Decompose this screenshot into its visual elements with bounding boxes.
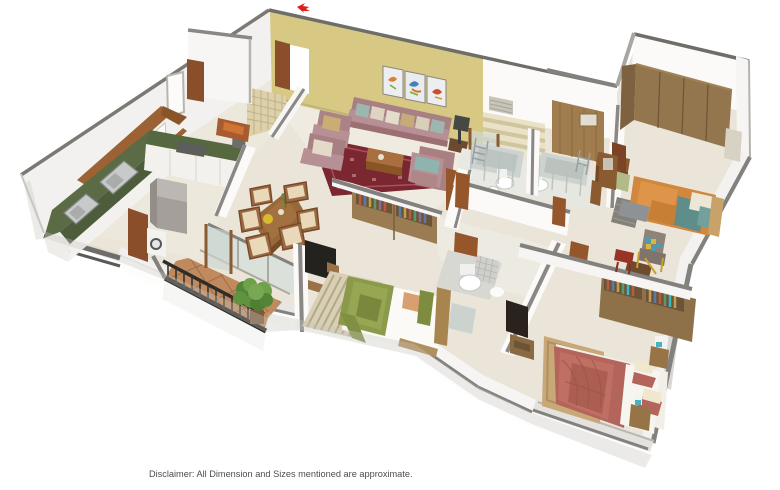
- svg-text:Disclaimer: All Dimension and: Disclaimer: All Dimension and Sizes ment…: [149, 469, 413, 479]
